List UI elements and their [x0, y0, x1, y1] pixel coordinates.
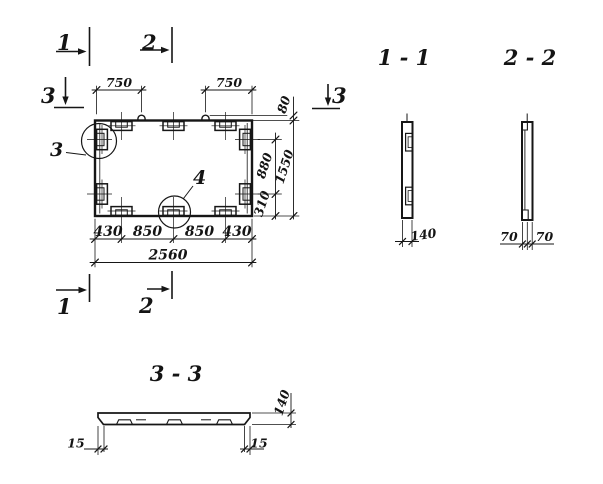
top-slot-3 [212, 112, 240, 140]
left-slot-2 [87, 180, 112, 209]
marker-2-bottom: 2 [138, 271, 172, 318]
dim-430-right: 430 [222, 224, 251, 240]
dim-80: 80 [274, 94, 294, 115]
detail-3-leader [66, 153, 86, 156]
dim-430-left: 430 [93, 224, 122, 240]
section-2-2-bottom-notch [523, 210, 529, 220]
top-slot-2 [160, 112, 188, 140]
marker-2-top: 2 [140, 27, 172, 63]
section-1-1-body [402, 122, 413, 218]
dim-310: 310 [251, 189, 273, 219]
section-3-3: 3 - 3 15 15 140 [67, 361, 296, 455]
detail-3-label: 3 [50, 139, 63, 161]
section-1-1-title: 1 - 1 [378, 45, 431, 70]
dim-15-right: 15 [250, 436, 267, 451]
dim-850-right: 850 [185, 224, 214, 240]
section-2-2-title: 2 - 2 [503, 45, 557, 70]
marker-1-top: 1 [56, 27, 90, 66]
section-1-1-notch-lower [406, 187, 413, 205]
marker-3-left: 3 [41, 77, 84, 108]
dim-750-left: 750 [106, 75, 132, 90]
bottom-slot-2 [160, 197, 188, 243]
dim-2560: 2560 [148, 248, 188, 264]
right-slot-1 [235, 125, 260, 154]
section-2-2: 2 - 2 70 70 [500, 45, 556, 250]
dim-15-left: 15 [67, 436, 84, 451]
dim-750-right: 750 [216, 75, 242, 90]
marker-2-top-label: 2 [141, 30, 157, 55]
marker-1-bottom-label: 1 [57, 294, 72, 319]
section-3-3-title: 3 - 3 [150, 361, 203, 386]
section-1-1-notch-upper [406, 133, 413, 151]
marker-3-right: 3 [312, 83, 347, 109]
top-slot-1 [108, 112, 136, 140]
marker-3-right-label: 3 [332, 83, 347, 108]
dim-850-left: 850 [133, 224, 162, 240]
dim-70-left: 70 [500, 229, 518, 244]
marker-3-left-label: 3 [41, 83, 56, 108]
left-slot-1 [87, 125, 112, 154]
dim-70-right: 70 [536, 229, 554, 244]
detail-4-label: 4 [193, 167, 206, 189]
section-2-2-top-notch [523, 123, 528, 131]
detail-4-leader [184, 186, 194, 199]
marker-2-bottom-label: 2 [138, 293, 154, 318]
drawing-canvas: 3 4 1 2 1 2 3 [0, 0, 603, 484]
marker-1-bottom: 1 [56, 274, 90, 319]
section-2-2-body [522, 122, 533, 220]
section-3-3-body [98, 413, 250, 425]
dim-140-section1: 140 [409, 225, 437, 244]
engineering-drawing-sheet: 3 4 1 2 1 2 3 [0, 0, 603, 484]
dim-880: 880 [253, 151, 275, 181]
section-1-1: 1 - 1 140 [378, 45, 438, 247]
